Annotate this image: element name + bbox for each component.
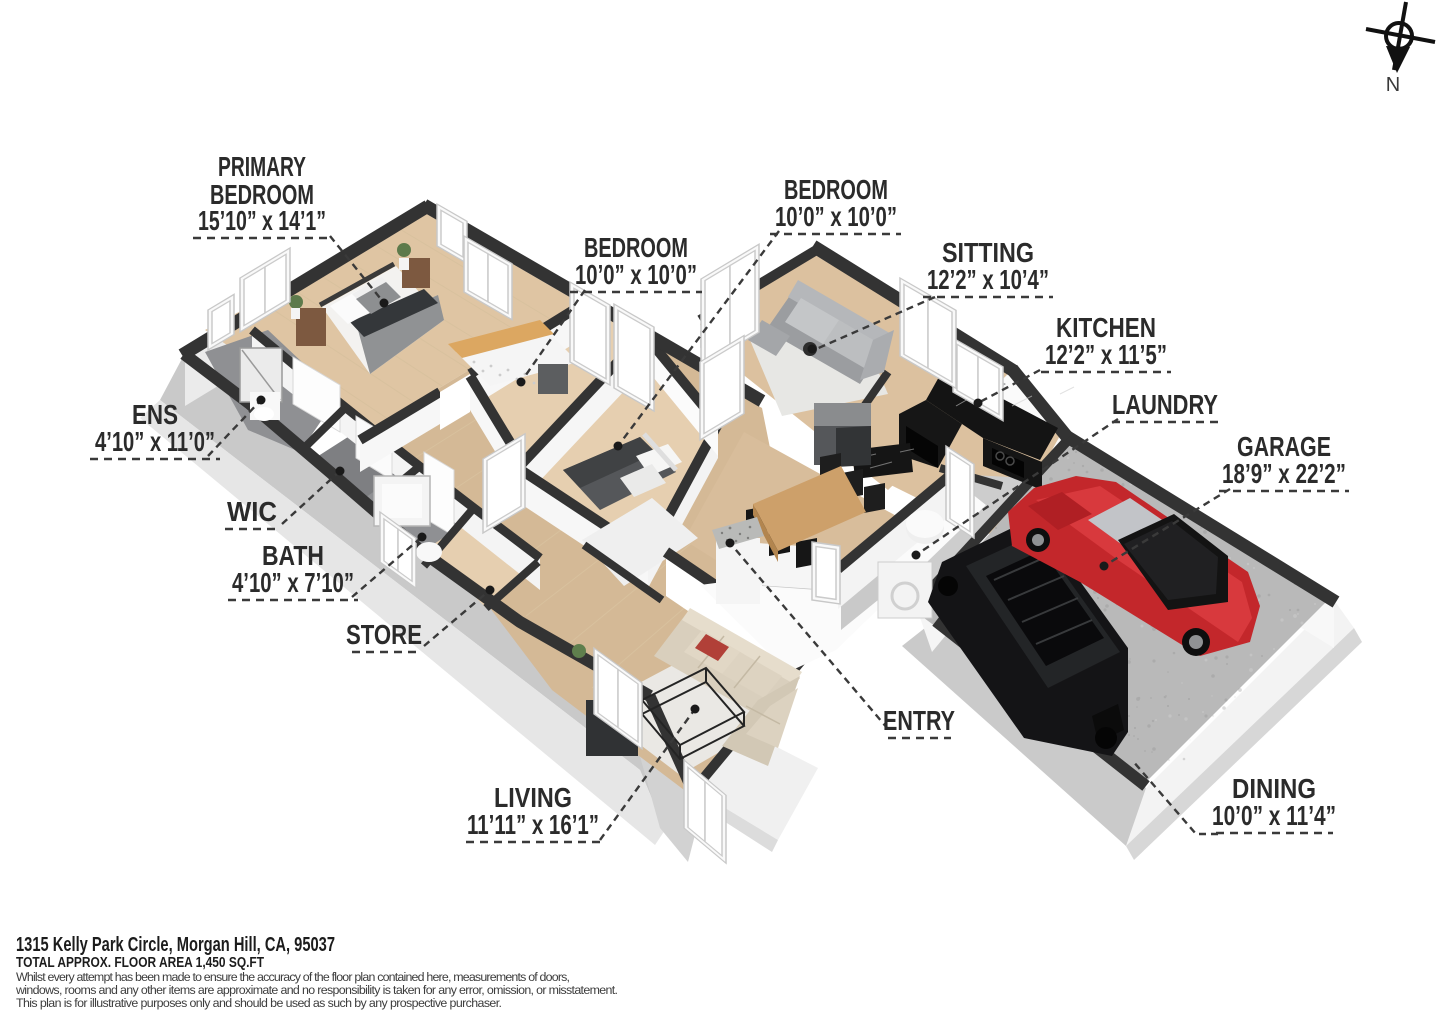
svg-text:STORE: STORE bbox=[346, 619, 422, 650]
svg-text:15’10” x 14’1”: 15’10” x 14’1” bbox=[198, 205, 326, 236]
svg-text:10’0” x 11’4”: 10’0” x 11’4” bbox=[1212, 800, 1336, 831]
svg-text:N: N bbox=[1386, 74, 1400, 96]
svg-text:10’0” x 10’0”: 10’0” x 10’0” bbox=[575, 259, 697, 290]
svg-text:10’0” x 10’0”: 10’0” x 10’0” bbox=[775, 201, 897, 232]
svg-text:LAUNDRY: LAUNDRY bbox=[1112, 389, 1218, 420]
svg-text:12’2” x 11’5”: 12’2” x 11’5” bbox=[1045, 339, 1167, 370]
svg-text:1315 Kelly Park Circle, Morgan: 1315 Kelly Park Circle, Morgan Hill, CA,… bbox=[16, 934, 335, 956]
svg-text:Whilst every attempt has been: Whilst every attempt has been made to en… bbox=[16, 970, 570, 984]
svg-text:4’10” x 7’10”: 4’10” x 7’10” bbox=[232, 567, 354, 598]
svg-text:18’9” x 22’2”: 18’9” x 22’2” bbox=[1222, 458, 1346, 489]
svg-text:4’10” x 11’0”: 4’10” x 11’0” bbox=[95, 426, 215, 457]
svg-text:11’11” x 16’1”: 11’11” x 16’1” bbox=[467, 809, 599, 840]
svg-text:12’2” x 10’4”: 12’2” x 10’4” bbox=[927, 264, 1049, 295]
svg-text:This plan is for illustrative: This plan is for illustrative purposes o… bbox=[16, 996, 502, 1010]
svg-text:PRIMARY: PRIMARY bbox=[218, 151, 306, 182]
svg-text:ENTRY: ENTRY bbox=[883, 705, 955, 736]
svg-text:WIC: WIC bbox=[227, 496, 277, 527]
svg-text:windows, rooms and any other i: windows, rooms and any other items are a… bbox=[15, 983, 618, 997]
svg-text:TOTAL APPROX. FLOOR AREA 1,450: TOTAL APPROX. FLOOR AREA 1,450 SQ.FT bbox=[16, 955, 264, 971]
